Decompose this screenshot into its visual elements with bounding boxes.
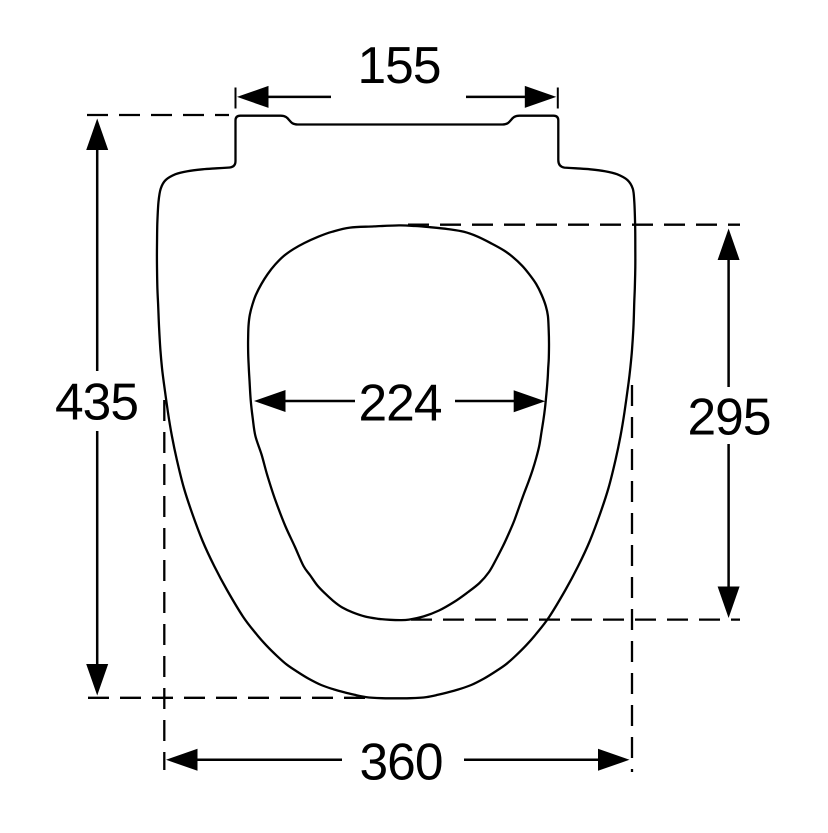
svg-text:224: 224 <box>359 374 442 432</box>
svg-text:360: 360 <box>360 733 443 791</box>
svg-text:155: 155 <box>358 36 441 94</box>
svg-text:435: 435 <box>55 373 138 431</box>
svg-text:295: 295 <box>688 388 771 446</box>
